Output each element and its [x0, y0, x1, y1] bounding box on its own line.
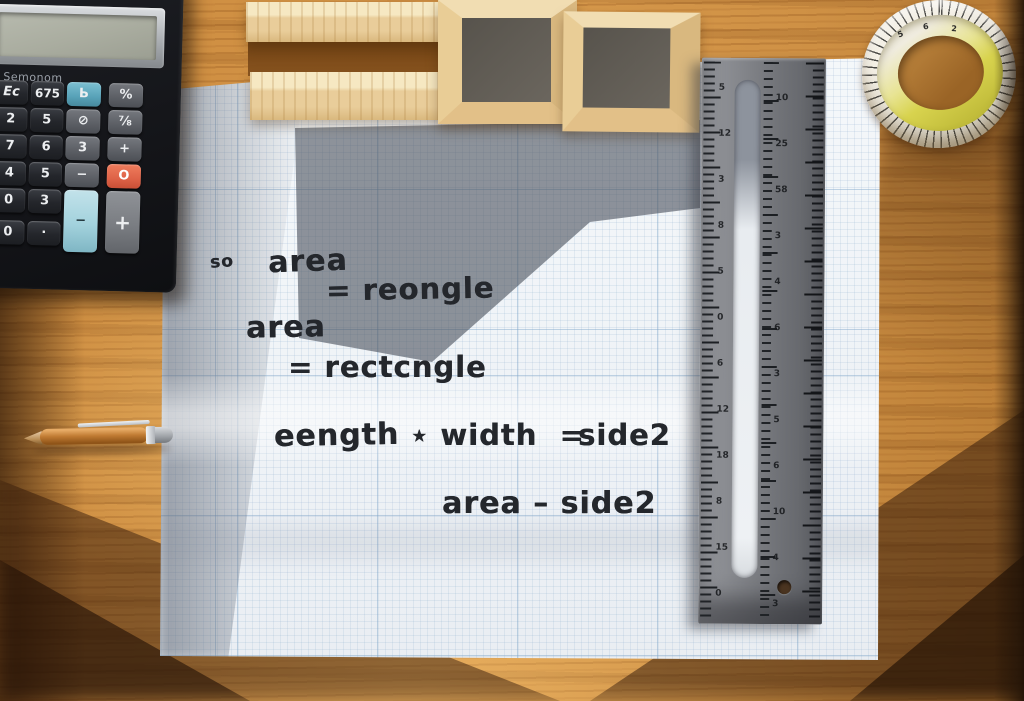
tape-number: 6 — [922, 22, 929, 32]
calculator-display-bezel — [0, 4, 165, 69]
calc-key: 7 — [0, 134, 27, 159]
calc-key: ⅞ — [108, 110, 143, 135]
calc-key: ⊘ — [66, 109, 101, 134]
handwritten-area-minus-side2: area – side2 — [442, 486, 656, 521]
calc-key: Ь — [67, 82, 102, 107]
wood-block-frame-middle — [438, 0, 577, 124]
calc-key: 2 — [0, 107, 28, 132]
calculator: Semonom Ec 675 Ь % 2 5 ⊘ ⅞ 7 6 3 + 4 5 −… — [0, 0, 184, 293]
desk-scene: so area = reongle area = rectcngle eengt… — [0, 0, 1024, 701]
calc-key-minus-large: − — [63, 190, 99, 253]
ruler-number: 3 — [772, 600, 778, 609]
calc-key: % — [109, 83, 144, 108]
calc-key: + — [107, 137, 142, 162]
ruler-number: 12 — [716, 406, 729, 415]
steel-ruler: 5 12 3 8 5 0 6 12 18 8 15 0 10 25 58 3 4… — [698, 58, 826, 625]
ruler-number: 3 — [775, 232, 781, 241]
calc-key: 4 — [0, 161, 26, 186]
calc-key: 5 — [30, 108, 64, 133]
ruler-ticks-right-major — [802, 62, 824, 618]
handwritten-equals-rectcngle: = rectcngle — [288, 350, 487, 384]
pen-shadow — [32, 444, 170, 455]
ruler-number: 0 — [717, 314, 723, 323]
ruler-number: 0 — [715, 590, 721, 599]
handwritten-side2: side2 — [578, 418, 671, 452]
handwritten-area-2: area — [246, 309, 326, 345]
ruler-number: 4 — [772, 554, 778, 563]
calc-key: 3 — [28, 189, 62, 214]
shadow-right-edge — [994, 0, 1024, 701]
ruler-number: 10 — [773, 508, 786, 517]
ruler-hang-hole — [777, 580, 791, 594]
ruler-number: 3 — [718, 176, 724, 185]
calc-key: 0 — [0, 220, 25, 245]
calculator-cast-shadow — [158, 56, 308, 660]
wood-block-frame-right — [562, 11, 700, 132]
pen-cap — [155, 427, 173, 443]
ruler-number: 18 — [716, 452, 729, 461]
ruler-slot — [731, 80, 760, 578]
handwritten-so: so — [209, 251, 234, 273]
handwritten-star-width-equals: ⋆ width = — [410, 418, 585, 452]
copper-pen — [24, 417, 177, 464]
calc-key: 675 — [31, 81, 65, 106]
tape-number: 2 — [951, 24, 957, 33]
ruler-number: 12 — [718, 130, 731, 139]
ruler-number: 4 — [774, 278, 780, 287]
calc-key-plus-large: + — [105, 191, 141, 254]
ruler-number: 5 — [773, 416, 779, 425]
ruler-number: 3 — [774, 370, 780, 379]
calc-key: · — [27, 221, 61, 246]
calc-key: 6 — [29, 135, 63, 160]
calc-key: Ec — [0, 80, 28, 105]
ruler-ticks-left-major — [700, 62, 721, 618]
calculator-lcd-display — [0, 12, 157, 60]
ruler-number: 6 — [774, 324, 780, 333]
calc-key: 0 — [0, 188, 25, 213]
ruler-number: 25 — [775, 140, 788, 149]
calc-key-clear: O — [107, 164, 142, 189]
ruler-number: 6 — [717, 360, 723, 369]
ruler-number: 15 — [716, 544, 729, 553]
calc-key: 5 — [29, 162, 63, 187]
calc-key: 3 — [65, 136, 100, 161]
ruler-number: 8 — [716, 498, 722, 507]
ruler-number: 58 — [775, 186, 788, 195]
ruler-number: 10 — [776, 94, 789, 103]
ruler-number: 5 — [719, 84, 725, 93]
calc-key: − — [65, 163, 100, 188]
handwritten-equals-reongle: = reongle — [326, 271, 495, 308]
pen-body — [40, 427, 148, 445]
ruler-number: 5 — [717, 268, 723, 277]
handwritten-eength: eength — [274, 417, 400, 454]
ruler-number: 6 — [773, 462, 779, 471]
ruler-number: 8 — [718, 222, 724, 231]
